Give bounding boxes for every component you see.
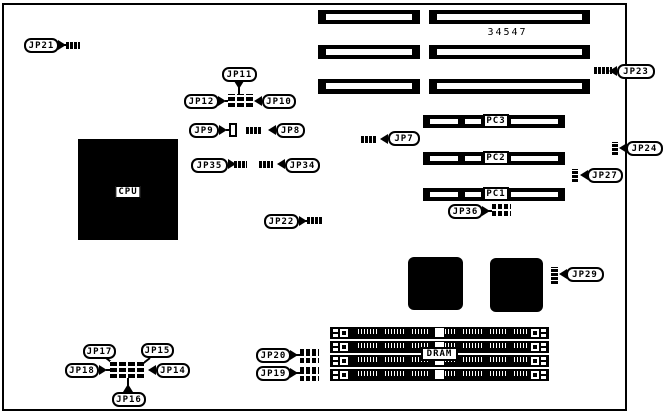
jumper-icon-jp9	[229, 123, 237, 137]
pointer-jp10	[254, 96, 262, 106]
simm-clip	[541, 376, 546, 379]
jumper-icon-jp22	[307, 217, 322, 224]
isa-slot-stripe	[326, 14, 412, 20]
pointer-jp7	[380, 134, 388, 144]
simm-clip	[541, 329, 546, 332]
jumper-label-jp8: JP8	[276, 123, 305, 138]
board-number: 34547	[470, 27, 545, 38]
simm-clip	[333, 334, 338, 337]
pc-slot-stripe	[465, 156, 481, 161]
isa-slot-5	[318, 79, 420, 94]
isa-slot-stripe	[326, 83, 412, 89]
pc-slot-stripe	[465, 119, 481, 124]
pc-slot-stripe	[511, 156, 558, 161]
jumper-label-jp23: JP23	[617, 64, 655, 79]
isa-slot-6	[429, 79, 590, 94]
jumper-label-jp14: JP14	[156, 363, 190, 378]
jumper-icon-jp27	[572, 169, 578, 182]
pointer-line-jp11	[238, 87, 240, 94]
pointer-jp23	[609, 66, 617, 76]
jumper-label-jp29: JP29	[566, 267, 604, 282]
simm-clip	[333, 376, 338, 379]
simm-slot-4	[330, 369, 549, 381]
simm-latch	[340, 329, 348, 337]
simm-clip	[541, 348, 546, 351]
simm-latch	[531, 357, 539, 365]
jumper-icon-jp24	[612, 142, 618, 155]
pc-slot-stripe	[511, 192, 558, 197]
isa-slot-stripe	[326, 49, 412, 55]
pci-slot-pc3: PC3	[423, 115, 565, 128]
jumper-label-jp16: JP16	[112, 392, 146, 407]
simm-clip	[541, 343, 546, 346]
jumper-label-jp24: JP24	[626, 141, 663, 156]
simm-latch	[340, 371, 348, 379]
pc1-label: PC1	[483, 187, 509, 201]
simm-clip	[333, 371, 338, 374]
simm-slot-1	[330, 327, 549, 339]
jumper-label-jp10: JP10	[262, 94, 296, 109]
simm-notch	[435, 328, 444, 337]
pointer-jp8	[268, 125, 276, 135]
jumper-label-jp18: JP18	[65, 363, 99, 378]
jumper-icon-jp34	[259, 161, 273, 168]
simm-latch	[340, 357, 348, 365]
isa-slot-3	[318, 45, 420, 59]
simm-clip	[541, 371, 546, 374]
jumper-icon-jp35	[234, 161, 247, 168]
jumper-label-jp19: JP19	[256, 366, 291, 381]
isa-slot-stripe	[437, 49, 582, 55]
jumper-icon-jp29	[551, 267, 558, 284]
jumper-icon-jp11-jp12-jp10	[228, 94, 253, 107]
dram-label: DRAM	[421, 347, 458, 361]
cpu-block: CPU	[78, 139, 178, 240]
pci-slot-pc1: PC1	[423, 188, 565, 201]
jumper-label-jp35: JP35	[191, 158, 228, 173]
jumper-icon-jp8	[246, 127, 262, 134]
jumper-label-jp27: JP27	[587, 168, 623, 183]
jumper-label-jp20: JP20	[256, 348, 291, 363]
qfp-chip-1	[408, 257, 463, 310]
jumper-label-jp11: JP11	[222, 67, 257, 82]
pc-slot-stripe	[430, 192, 458, 197]
simm-clip	[333, 362, 338, 365]
pc2-label: PC2	[483, 151, 509, 165]
pc-slot-stripe	[511, 119, 558, 124]
jumper-icon-jp19	[300, 367, 319, 381]
jumper-label-jp22: JP22	[264, 214, 299, 229]
simm-latch	[531, 371, 539, 379]
jumper-icon-jp21	[66, 42, 80, 49]
isa-slot-4	[429, 45, 590, 59]
jumper-icon-jp20	[300, 349, 319, 363]
jumper-icon-jp7	[361, 136, 377, 143]
motherboard-diagram: 34547 JP21 JP23 JP11 JP12 JP10 JP9 JP8 J…	[0, 0, 665, 415]
jumper-label-jp21: JP21	[24, 38, 59, 53]
isa-slot-stripe	[437, 14, 582, 20]
pointer-jp34	[277, 159, 285, 169]
jumper-icon-jp36	[492, 204, 511, 216]
jumper-label-jp36: JP36	[448, 204, 483, 219]
isa-slot-1	[318, 10, 420, 24]
pci-slot-pc2: PC2	[423, 152, 565, 165]
qfp-chip-2	[490, 258, 543, 312]
jumper-label-jp7: JP7	[388, 131, 420, 146]
simm-clip	[541, 334, 546, 337]
jumper-label-jp17: JP17	[83, 344, 116, 359]
cpu-label: CPU	[115, 186, 140, 198]
pc3-label: PC3	[483, 114, 509, 128]
jumper-label-jp12: JP12	[184, 94, 219, 109]
jumper-label-jp9: JP9	[189, 123, 219, 138]
simm-notch	[435, 370, 444, 379]
isa-slot-2	[429, 10, 590, 24]
jumper-label-jp15: JP15	[141, 343, 174, 358]
simm-clip	[333, 343, 338, 346]
simm-latch	[531, 329, 539, 337]
pointer-jp14	[148, 365, 156, 375]
pc-slot-stripe	[465, 192, 481, 197]
jumper-icon-jp14-jp15-jp16-jp17-jp18	[110, 361, 144, 378]
simm-clip	[541, 362, 546, 365]
simm-clip	[333, 348, 338, 351]
isa-slot-stripe	[437, 83, 582, 89]
pc-slot-stripe	[430, 156, 458, 161]
simm-clip	[541, 357, 546, 360]
simm-latch	[340, 343, 348, 351]
pc-slot-stripe	[430, 119, 458, 124]
pointer-jp16	[123, 384, 133, 392]
jumper-label-jp34: JP34	[285, 158, 320, 173]
simm-clip	[333, 329, 338, 332]
simm-latch	[531, 343, 539, 351]
simm-clip	[333, 357, 338, 360]
